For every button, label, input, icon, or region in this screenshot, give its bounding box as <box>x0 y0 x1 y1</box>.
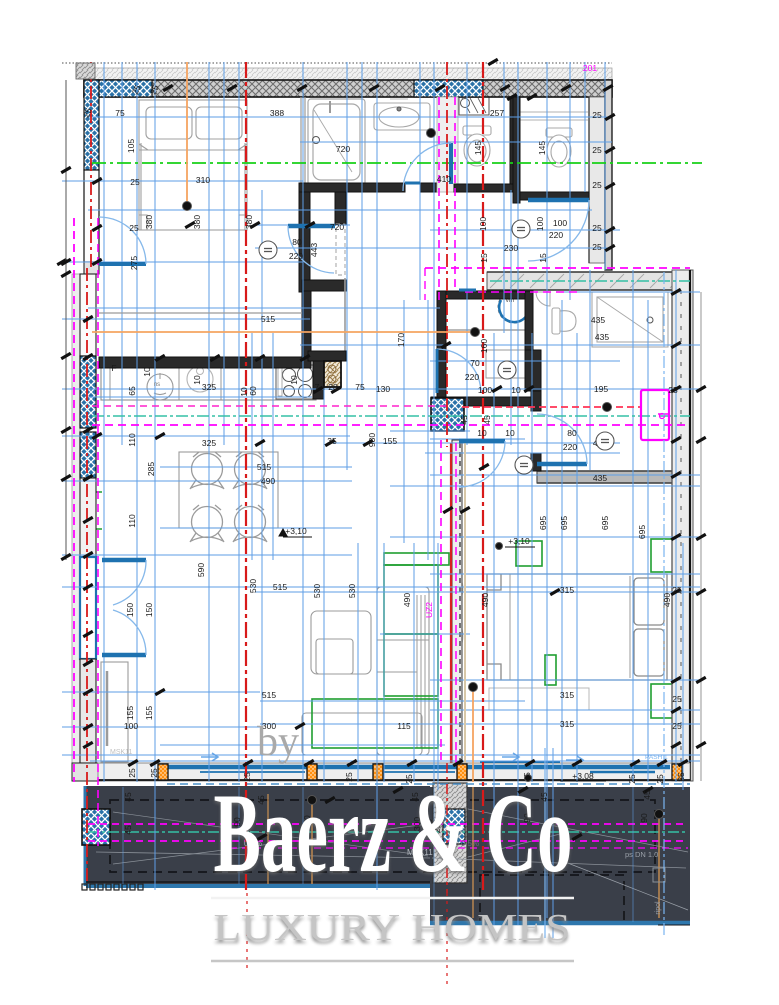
svg-text:155: 155 <box>383 436 397 446</box>
svg-text:285: 285 <box>146 462 156 476</box>
svg-text:160: 160 <box>479 339 489 353</box>
svg-text:515: 515 <box>273 582 287 592</box>
svg-text:25: 25 <box>672 694 682 704</box>
svg-text:130: 130 <box>376 384 390 394</box>
svg-text:25: 25 <box>668 385 678 395</box>
svg-text:70: 70 <box>470 358 480 368</box>
svg-text:+3,08: +3,08 <box>572 771 594 781</box>
svg-text:100: 100 <box>535 217 545 231</box>
svg-text:145: 145 <box>537 141 547 155</box>
svg-text:150: 150 <box>125 603 135 617</box>
svg-text:25: 25 <box>130 177 140 187</box>
svg-text:110: 110 <box>127 433 137 447</box>
svg-text:100: 100 <box>478 217 488 231</box>
svg-text:220: 220 <box>465 372 479 382</box>
svg-text:720: 720 <box>330 222 344 232</box>
svg-text:80: 80 <box>292 237 302 247</box>
svg-text:25: 25 <box>129 223 139 233</box>
svg-text:10: 10 <box>192 375 202 385</box>
svg-text:10: 10 <box>511 385 521 395</box>
svg-text:+3,10: +3,10 <box>285 526 307 536</box>
svg-text:590: 590 <box>196 563 206 577</box>
svg-text:435: 435 <box>595 332 609 342</box>
svg-text:530: 530 <box>248 579 258 593</box>
svg-text:325: 325 <box>202 438 216 448</box>
svg-text:695: 695 <box>538 516 548 530</box>
svg-text:45: 45 <box>482 415 492 425</box>
svg-text:380: 380 <box>192 215 202 229</box>
svg-text:25: 25 <box>149 768 159 778</box>
svg-text:315: 315 <box>560 719 574 729</box>
svg-text:ns: ns <box>154 382 160 388</box>
svg-text:155: 155 <box>144 706 154 720</box>
svg-text:LUXURY HOMES: LUXURY HOMES <box>214 907 571 949</box>
svg-text:25: 25 <box>592 223 602 233</box>
svg-text:230: 230 <box>504 243 518 253</box>
svg-text:220: 220 <box>563 442 577 452</box>
svg-text:315: 315 <box>560 690 574 700</box>
svg-text:220: 220 <box>549 230 563 240</box>
svg-text:35: 35 <box>327 436 337 446</box>
svg-text:10: 10 <box>142 367 152 377</box>
svg-text:105: 105 <box>126 139 136 153</box>
svg-text:720: 720 <box>336 144 350 154</box>
svg-text:25: 25 <box>592 110 602 120</box>
svg-text:155: 155 <box>125 706 135 720</box>
svg-text:410: 410 <box>437 174 451 184</box>
svg-text:490: 490 <box>402 593 412 607</box>
svg-text:435: 435 <box>591 315 605 325</box>
svg-text:515: 515 <box>262 690 276 700</box>
svg-text:15: 15 <box>479 253 489 263</box>
svg-text:90: 90 <box>639 813 649 823</box>
svg-text:100: 100 <box>124 721 138 731</box>
svg-text:100: 100 <box>553 218 567 228</box>
svg-text:515: 515 <box>261 314 275 324</box>
svg-text:115: 115 <box>397 721 411 731</box>
svg-text:257: 257 <box>490 108 504 118</box>
svg-text:10: 10 <box>477 428 487 438</box>
svg-text:170: 170 <box>396 333 406 347</box>
svg-text:25: 25 <box>592 242 602 252</box>
svg-text:45: 45 <box>123 792 133 802</box>
svg-text:15: 15 <box>538 253 548 263</box>
svg-text:490: 490 <box>261 476 275 486</box>
svg-text:380: 380 <box>144 215 154 229</box>
svg-text:75: 75 <box>115 108 125 118</box>
svg-text:80: 80 <box>567 428 577 438</box>
svg-text:25: 25 <box>672 585 682 595</box>
svg-text:10: 10 <box>505 428 515 438</box>
svg-text:10: 10 <box>239 387 249 397</box>
svg-text:UZ2: UZ2 <box>424 602 434 618</box>
svg-text:435: 435 <box>593 473 607 483</box>
svg-text:25: 25 <box>592 145 602 155</box>
svg-text:695: 695 <box>600 516 610 530</box>
svg-text:530: 530 <box>347 584 357 598</box>
svg-text:530: 530 <box>312 584 322 598</box>
svg-text:ripol: ripol <box>655 901 662 915</box>
svg-text:45: 45 <box>123 825 133 835</box>
svg-text:ps DN 1.0: ps DN 1.0 <box>625 850 658 859</box>
svg-text:380: 380 <box>244 215 254 229</box>
svg-text:25: 25 <box>676 772 686 782</box>
svg-text:443: 443 <box>309 243 319 257</box>
svg-text:220: 220 <box>289 251 303 261</box>
svg-text:490: 490 <box>662 593 672 607</box>
svg-text:150: 150 <box>144 603 154 617</box>
svg-text:60: 60 <box>248 386 258 396</box>
svg-text:25: 25 <box>627 774 637 784</box>
svg-text:100: 100 <box>478 385 492 395</box>
svg-text:45: 45 <box>459 415 469 425</box>
svg-text:515: 515 <box>257 462 271 472</box>
svg-text:695: 695 <box>559 516 569 530</box>
svg-text:310: 310 <box>196 175 210 185</box>
svg-text:7: 7 <box>315 382 320 392</box>
svg-text:201: 201 <box>583 63 597 73</box>
svg-text:388: 388 <box>270 108 284 118</box>
svg-text:25: 25 <box>655 774 665 784</box>
svg-text:28: 28 <box>328 382 338 392</box>
svg-text:Baerz & Co: Baerz & Co <box>214 771 573 896</box>
svg-text:315: 315 <box>560 585 574 595</box>
svg-text:145: 145 <box>473 141 483 155</box>
svg-text:25: 25 <box>127 768 137 778</box>
svg-text:325: 325 <box>202 382 216 392</box>
svg-text:195: 195 <box>594 384 608 394</box>
svg-text:25: 25 <box>592 180 602 190</box>
svg-text:490: 490 <box>480 593 490 607</box>
svg-text:65: 65 <box>127 386 137 396</box>
svg-text:45: 45 <box>642 790 652 800</box>
svg-text:10: 10 <box>289 375 299 385</box>
svg-text:+3,10: +3,10 <box>508 536 530 546</box>
svg-text:980: 980 <box>367 433 377 447</box>
svg-text:110: 110 <box>127 514 137 528</box>
svg-text:by: by <box>257 719 299 765</box>
svg-text:695: 695 <box>637 525 647 539</box>
svg-text:F: F <box>111 363 116 373</box>
svg-text:275: 275 <box>129 256 139 270</box>
svg-text:75: 75 <box>355 382 365 392</box>
svg-text:25: 25 <box>672 721 682 731</box>
